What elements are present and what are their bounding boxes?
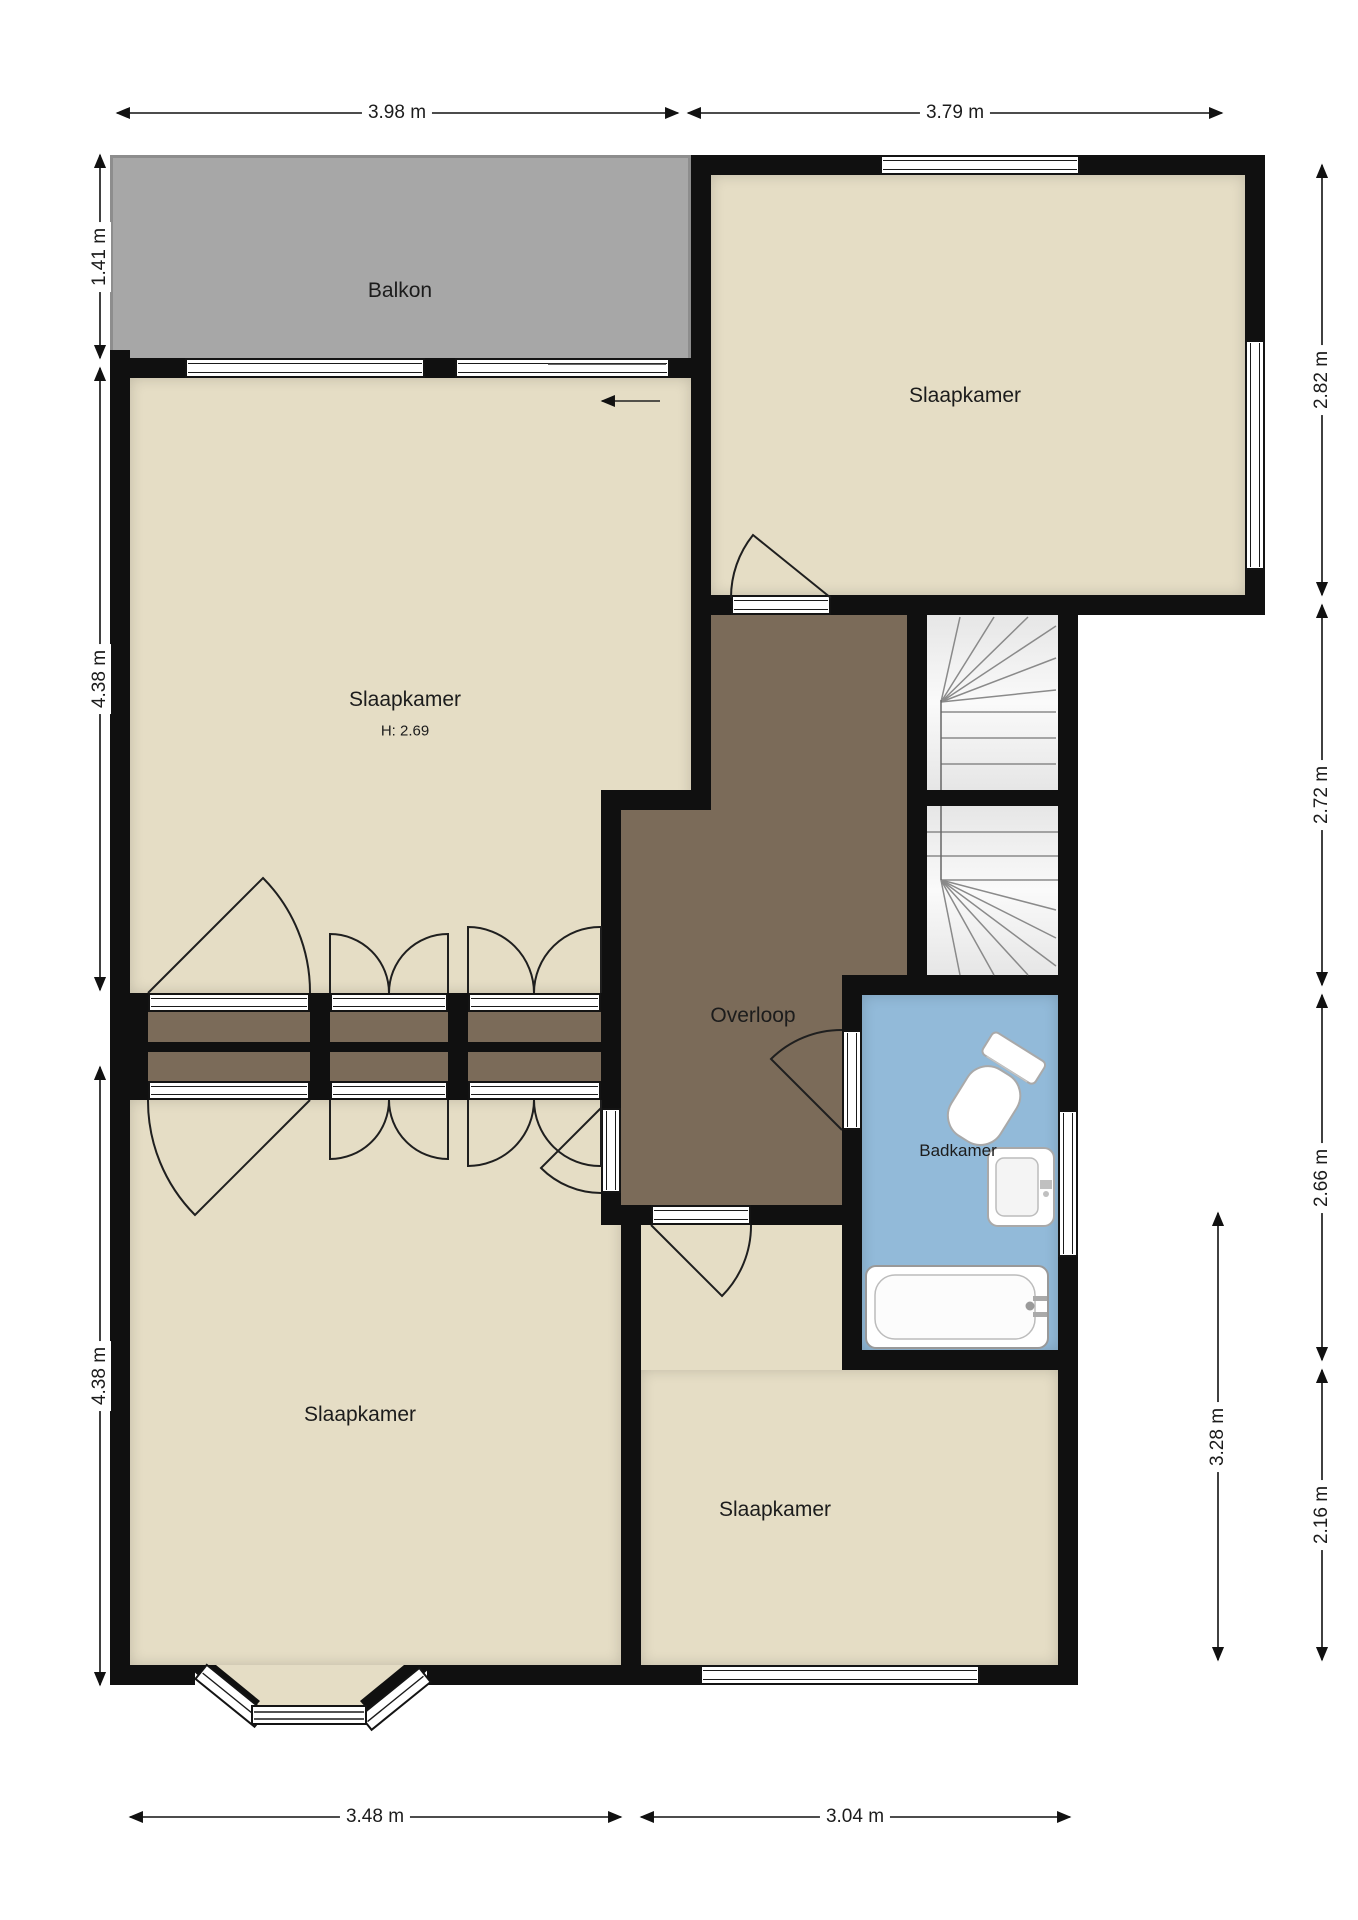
bay-window [187, 1665, 433, 1730]
door-swings [148, 535, 842, 1296]
label-overloop: Overloop [710, 1004, 795, 1028]
door-closet-top-2a [330, 934, 389, 993]
label-balkon: Balkon [368, 279, 432, 303]
toilet [937, 1031, 1047, 1155]
dim-right-1: 2.82 m [1311, 345, 1333, 415]
dim-top-2: 3.79 m [920, 102, 990, 124]
dim-right-2: 2.72 m [1311, 760, 1333, 830]
label-slaapkamer-top-right: Slaapkamer [909, 384, 1021, 408]
door-overloop-to-lower-left [541, 1108, 601, 1193]
label-ceiling-height: H: 2.69 [381, 723, 429, 740]
door-bedroom-top-right [731, 535, 831, 598]
door-badkamer [771, 1030, 842, 1130]
door-closet-bottom-2b [389, 1100, 448, 1159]
dim-right-inner: 3.28 m [1207, 1402, 1229, 1472]
label-slaapkamer-lower-left: Slaapkamer [304, 1403, 416, 1427]
label-slaapkamer-lower-right: Slaapkamer [719, 1498, 831, 1522]
plan-overlay [0, 0, 1358, 1920]
door-closet-bottom-2a [330, 1100, 389, 1159]
door-closet-top-1 [148, 878, 310, 993]
washbasin [988, 1148, 1054, 1226]
dim-right-4: 2.16 m [1311, 1480, 1333, 1550]
door-closet-top-3b [534, 927, 601, 993]
door-closet-bottom-3b [534, 1100, 601, 1166]
staircase-upper-flight [927, 615, 1058, 790]
staircase-lower-flight [927, 806, 1058, 975]
dim-left-1: 1.41 m [89, 222, 111, 292]
label-slaapkamer-upper-left: Slaapkamer [349, 688, 461, 712]
dim-bottom-2: 3.04 m [820, 1806, 890, 1828]
dim-left-3: 4.38 m [89, 1341, 111, 1411]
floorplan-canvas: Balkon Slaapkamer Slaapkamer H: 2.69 Ove… [0, 0, 1358, 1920]
label-badkamer: Badkamer [919, 1141, 996, 1161]
dim-right-3: 2.66 m [1311, 1143, 1333, 1213]
door-overloop-to-lower-right [651, 1225, 751, 1296]
bathtub [866, 1266, 1048, 1348]
dimension-lines [100, 113, 1322, 1817]
sliding-door-arrow [548, 364, 666, 401]
door-closet-top-2b [389, 934, 448, 993]
dim-left-2: 4.38 m [89, 644, 111, 714]
dim-bottom-1: 3.48 m [340, 1806, 410, 1828]
dim-top-1: 3.98 m [362, 102, 432, 124]
door-closet-bottom-1 [148, 1100, 310, 1215]
door-closet-top-3a [468, 927, 534, 993]
door-closet-bottom-3a [468, 1100, 534, 1166]
